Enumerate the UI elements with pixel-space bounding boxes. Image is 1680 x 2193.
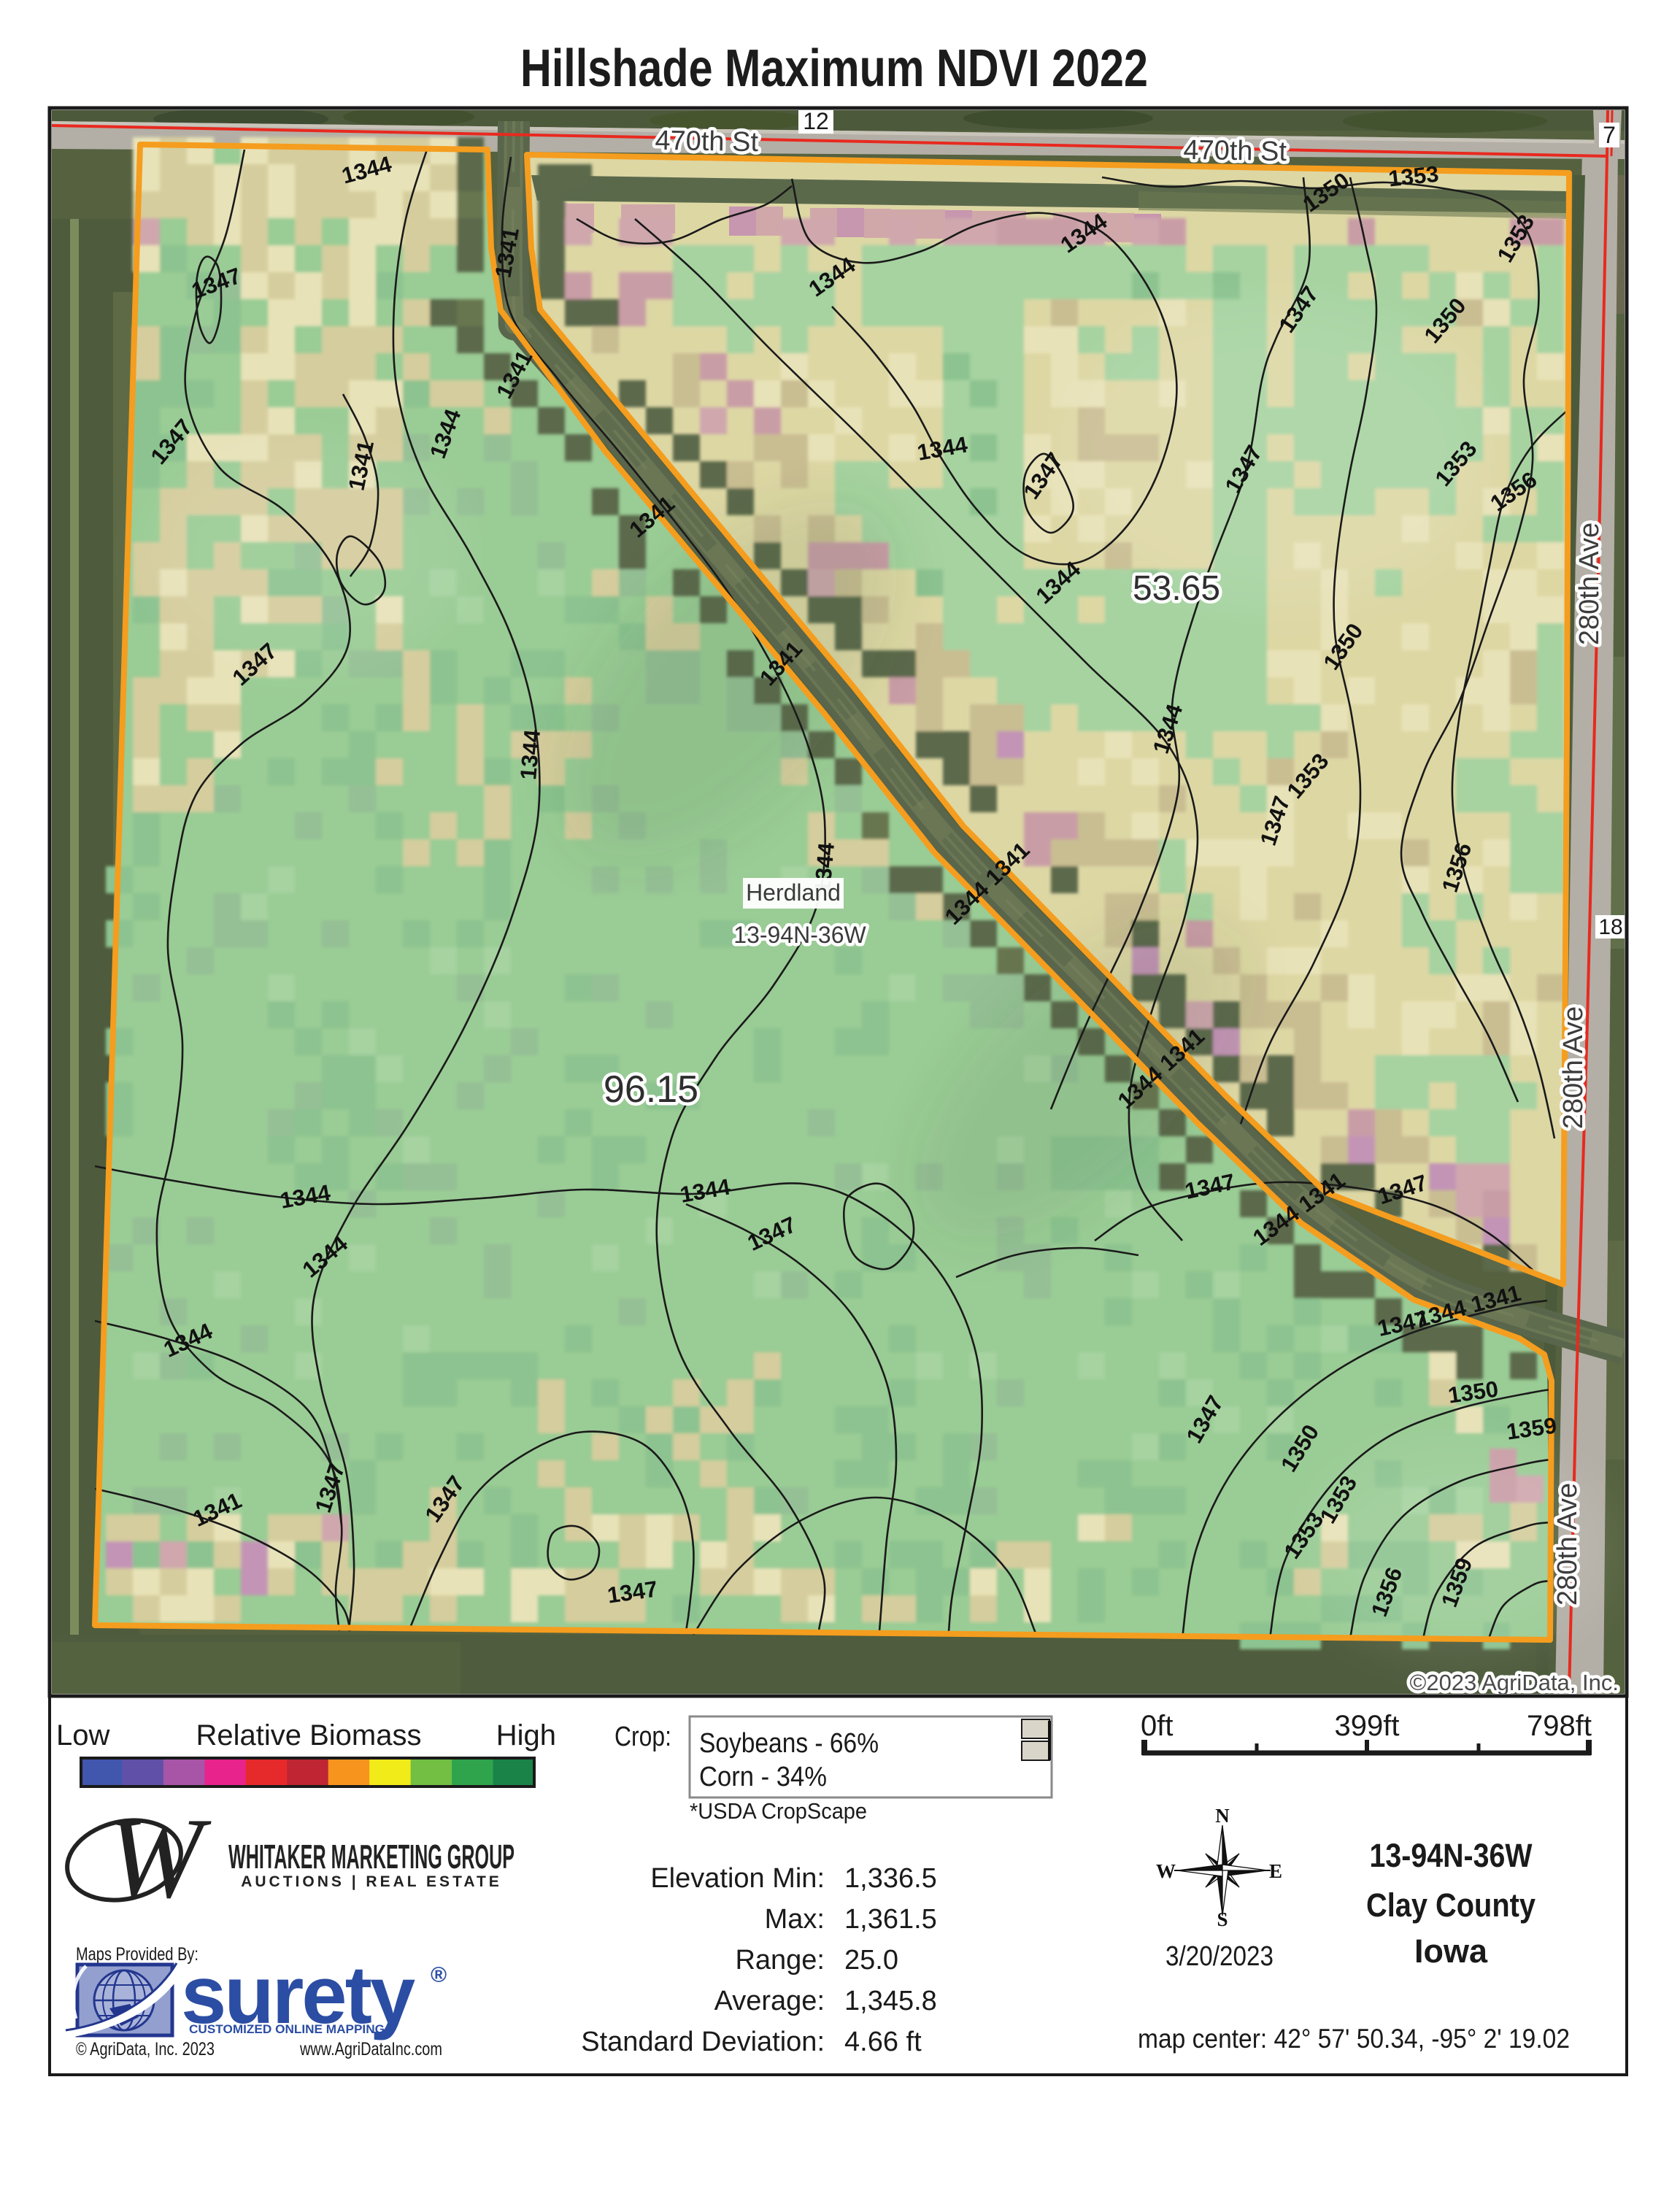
svg-text:3/20/2023: 3/20/2023	[1165, 1941, 1274, 1972]
svg-text:280th Ave: 280th Ave	[1574, 523, 1605, 645]
svg-text:1,336.5: 1,336.5	[844, 1863, 937, 1894]
svg-text:Iowa: Iowa	[1414, 1932, 1488, 1970]
svg-text:Crop:: Crop:	[614, 1722, 671, 1752]
svg-text:13-94N-36W: 13-94N-36W	[1370, 1837, 1533, 1874]
svg-text:Standard Deviation:: Standard Deviation:	[581, 2027, 825, 2057]
svg-text:470th St: 470th St	[1183, 135, 1287, 167]
svg-text:WHITAKER MARKETING GROUP: WHITAKER MARKETING GROUP	[228, 1838, 515, 1876]
svg-text:®: ®	[431, 1963, 447, 1987]
svg-text:*USDA CropScape: *USDA CropScape	[690, 1798, 867, 1824]
svg-text:E: E	[1269, 1860, 1282, 1882]
svg-text:CUSTOMIZED ONLINE MAPPING: CUSTOMIZED ONLINE MAPPING	[189, 2022, 385, 2036]
svg-text:N: N	[1215, 1805, 1230, 1827]
svg-text:96.15: 96.15	[604, 1068, 698, 1111]
svg-text:399ft: 399ft	[1335, 1710, 1400, 1742]
svg-text:13-94N-36W: 13-94N-36W	[733, 922, 866, 948]
svg-text:798ft: 798ft	[1527, 1710, 1592, 1742]
svg-text:Max:: Max:	[765, 1904, 825, 1935]
svg-text:©2023 AgriData, Inc.: ©2023 AgriData, Inc.	[1409, 1670, 1619, 1695]
svg-text:Elevation Min:: Elevation Min:	[650, 1863, 825, 1894]
svg-text:25.0: 25.0	[844, 1945, 898, 1976]
svg-text:470th St: 470th St	[655, 126, 759, 158]
svg-text:1344: 1344	[515, 728, 545, 781]
svg-text:Range:: Range:	[735, 1945, 825, 1976]
svg-text:www.AgriDataInc.com: www.AgriDataInc.com	[299, 2039, 442, 2059]
svg-text:280th Ave: 280th Ave	[1558, 1006, 1589, 1129]
svg-text:53.65: 53.65	[1133, 569, 1220, 608]
svg-text:0ft: 0ft	[1141, 1710, 1173, 1742]
svg-text:Soybeans - 66%: Soybeans - 66%	[699, 1728, 879, 1759]
svg-text:Corn - 34%: Corn - 34%	[699, 1762, 827, 1792]
svg-text:18: 18	[1598, 915, 1622, 939]
svg-text:Low: Low	[56, 1719, 109, 1751]
svg-text:W: W	[107, 1795, 212, 1922]
svg-text:© AgriData, Inc. 2023: © AgriData, Inc. 2023	[76, 2039, 215, 2059]
svg-text:Average:: Average:	[714, 1986, 825, 2016]
svg-text:S: S	[1217, 1908, 1228, 1930]
svg-text:7: 7	[1603, 122, 1616, 148]
svg-text:Hillshade Maximum NDVI 2022: Hillshade Maximum NDVI 2022	[520, 39, 1148, 98]
svg-text:Clay County: Clay County	[1366, 1886, 1535, 1924]
svg-text:1353: 1353	[1387, 161, 1440, 192]
svg-text:High: High	[496, 1719, 556, 1751]
svg-text:4.66 ft: 4.66 ft	[844, 2027, 922, 2057]
svg-text:1,345.8: 1,345.8	[844, 1986, 937, 2016]
svg-text:Relative Biomass: Relative Biomass	[196, 1719, 421, 1751]
svg-text:1,361.5: 1,361.5	[844, 1904, 937, 1935]
svg-text:AUCTIONS | REAL ESTATE: AUCTIONS | REAL ESTATE	[241, 1873, 502, 1890]
svg-text:map center: 42° 57' 50.34, -95: map center: 42° 57' 50.34, -95° 2' 19.02	[1138, 2024, 1570, 2054]
svg-text:W: W	[1156, 1860, 1176, 1882]
svg-text:12: 12	[803, 108, 829, 134]
svg-text:Herdland: Herdland	[746, 879, 841, 906]
svg-text:Maps Provided By:: Maps Provided By:	[76, 1944, 199, 1965]
svg-text:280th Ave: 280th Ave	[1552, 1483, 1583, 1606]
